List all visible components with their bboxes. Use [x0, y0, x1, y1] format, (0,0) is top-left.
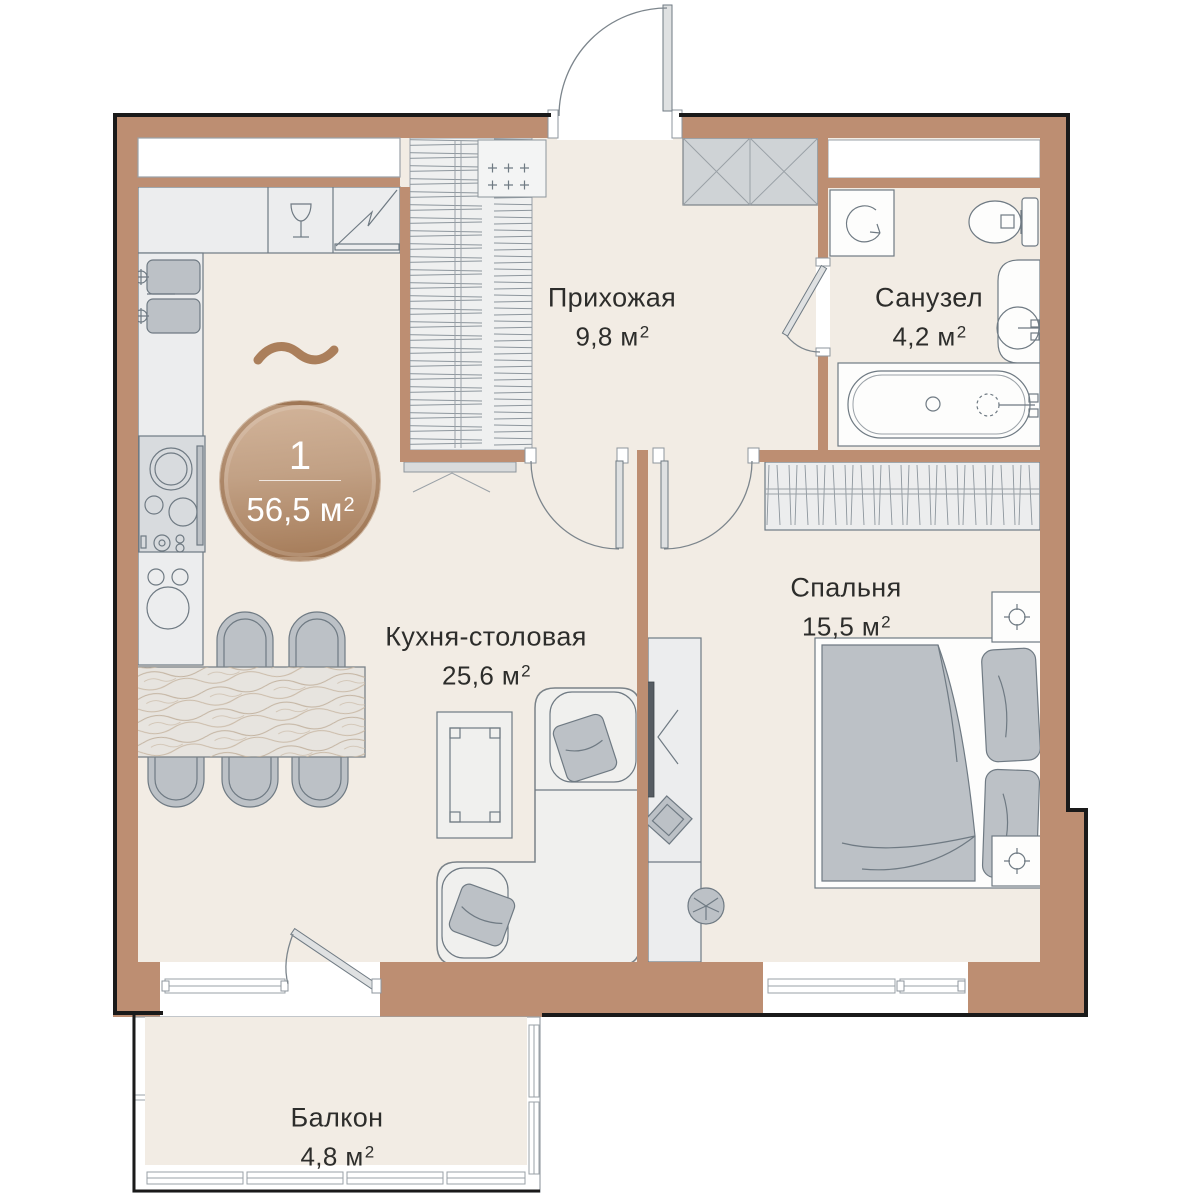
bathroom-name: Санузел	[875, 283, 983, 314]
kitchen-counter	[133, 253, 205, 665]
room-label-balcony: Балкон 4,8 м2	[291, 1103, 384, 1174]
area-badge: 1 56,5 м2	[220, 401, 380, 561]
toilet	[969, 198, 1038, 246]
duct-shaft	[828, 140, 1040, 178]
entry-wardrobe	[683, 138, 818, 205]
entrance-door	[548, 5, 682, 140]
balcony-area: 4,8 м2	[291, 1134, 384, 1174]
dining-table	[133, 667, 365, 757]
kitchen-dining-area: 25,6 м2	[385, 653, 587, 693]
kitchen-window	[138, 138, 400, 177]
bedroom-wardrobe	[765, 462, 1040, 530]
nightstand	[992, 592, 1042, 642]
bedroom-name: Спальня	[790, 573, 901, 604]
cooktop	[139, 436, 205, 552]
rooms-count: 1	[289, 435, 311, 477]
bathtub	[838, 363, 1040, 446]
closet-shelf	[404, 462, 516, 472]
kitchen-upper-cabinets	[138, 187, 400, 253]
balcony-name: Балкон	[291, 1103, 384, 1134]
coffee-table	[437, 712, 512, 838]
washbasin	[997, 260, 1040, 363]
kitchen-dining-name: Кухня-столовая	[385, 622, 587, 653]
room-label-bedroom: Спальня 15,5 м2	[790, 573, 901, 644]
floor-plan: Прихожая 9,8 м2 Санузел 4,2 м2 Спальня 1…	[0, 0, 1200, 1200]
bedroom-area: 15,5 м2	[790, 604, 901, 644]
badge-divider	[259, 480, 341, 481]
bathroom-area: 4,2 м2	[875, 314, 983, 354]
room-label-kitchen-dining: Кухня-столовая 25,6 м2	[385, 622, 587, 693]
living-area	[437, 688, 640, 965]
room-label-hallway: Прихожая 9,8 м2	[548, 283, 676, 354]
room-label-bathroom: Санузел 4,2 м2	[875, 283, 983, 354]
nightstand	[992, 836, 1042, 886]
hallway-area: 9,8 м2	[548, 314, 676, 354]
pillow	[981, 648, 1041, 763]
bedroom-window	[763, 962, 968, 1017]
hallway-name: Прихожая	[548, 283, 676, 314]
floor-plan-drawing	[0, 0, 1200, 1200]
washing-machine	[830, 190, 894, 256]
hallway-closet	[404, 138, 546, 492]
total-area: 56,5 м2	[246, 485, 353, 528]
round-pouf	[688, 888, 724, 924]
